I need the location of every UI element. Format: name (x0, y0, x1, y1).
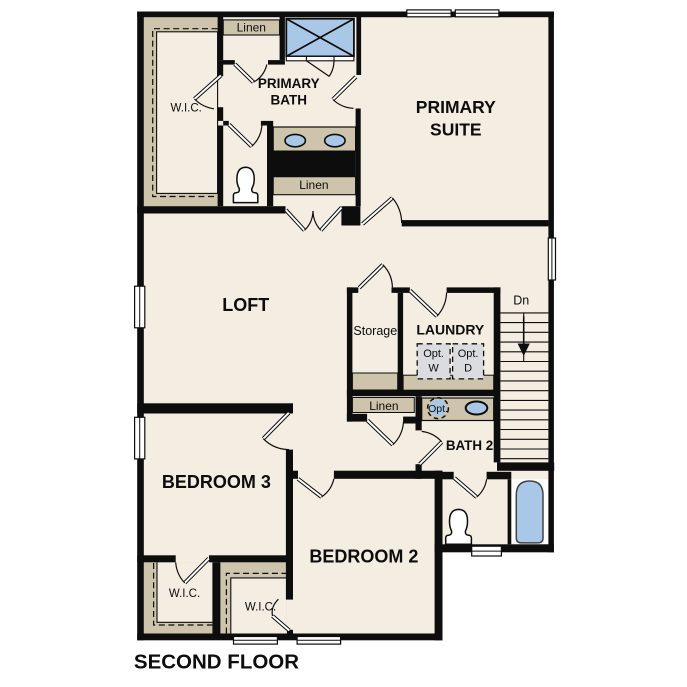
svg-text:W.I.C.: W.I.C. (245, 601, 276, 613)
svg-text:BATH: BATH (271, 92, 308, 107)
svg-text:W.I.C.: W.I.C. (169, 588, 200, 600)
svg-text:BEDROOM 3: BEDROOM 3 (162, 472, 271, 492)
svg-text:BEDROOM 2: BEDROOM 2 (309, 547, 418, 567)
svg-text:LOFT: LOFT (222, 295, 269, 315)
svg-text:D: D (464, 362, 472, 374)
svg-text:Opt.: Opt. (428, 403, 448, 415)
svg-text:Linen: Linen (299, 178, 328, 192)
svg-text:W: W (428, 362, 439, 374)
svg-text:Opt.: Opt. (458, 348, 479, 360)
svg-text:BATH 2: BATH 2 (446, 438, 493, 453)
svg-text:SECOND FLOOR: SECOND FLOOR (134, 650, 299, 673)
svg-text:Linen: Linen (237, 21, 266, 35)
svg-text:PRIMARY: PRIMARY (258, 76, 320, 91)
svg-text:PRIMARY: PRIMARY (416, 97, 496, 117)
svg-text:LAUNDRY: LAUNDRY (416, 322, 485, 338)
svg-text:W.I.C.: W.I.C. (171, 102, 202, 114)
svg-text:Storage: Storage (353, 324, 397, 338)
svg-text:Linen: Linen (369, 399, 398, 413)
svg-text:Opt.: Opt. (423, 348, 444, 360)
svg-text:Dn: Dn (513, 294, 529, 308)
svg-text:SUITE: SUITE (430, 120, 482, 140)
